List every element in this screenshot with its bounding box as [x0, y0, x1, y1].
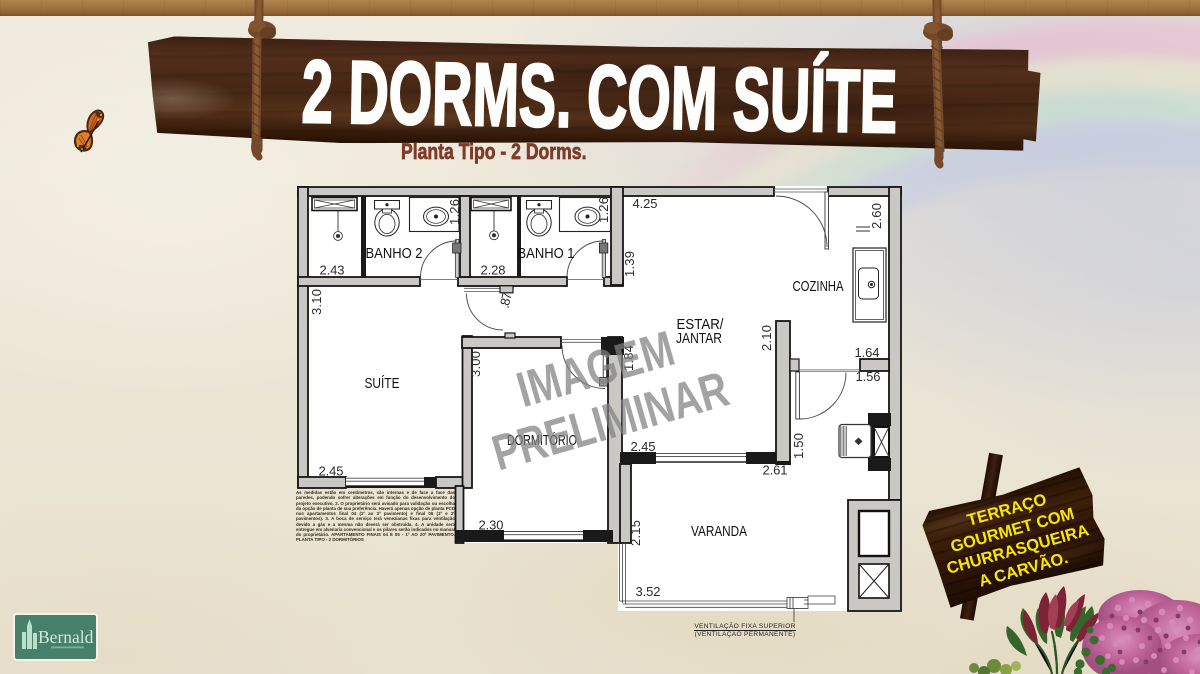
- svg-text:1.50: 1.50: [791, 433, 806, 459]
- svg-text:SUÍTE: SUÍTE: [365, 375, 400, 392]
- svg-text:1.56: 1.56: [856, 369, 881, 384]
- svg-text:2.60: 2.60: [869, 203, 884, 229]
- svg-text:2.45: 2.45: [319, 464, 344, 479]
- svg-text:1.39: 1.39: [622, 251, 637, 277]
- svg-text:VARANDA: VARANDA: [691, 523, 747, 540]
- svg-text:3.52: 3.52: [636, 584, 661, 599]
- svg-text:1.26: 1.26: [596, 197, 611, 223]
- svg-text:3.10: 3.10: [309, 289, 324, 315]
- svg-text:BANHO 2: BANHO 2: [366, 245, 423, 262]
- svg-text:2.43: 2.43: [320, 263, 345, 278]
- svg-text:4.25: 4.25: [633, 196, 658, 211]
- svg-text:2.15: 2.15: [628, 520, 643, 546]
- svg-text:2.30: 2.30: [479, 518, 504, 533]
- svg-text:Bernald: Bernald: [38, 627, 94, 647]
- svg-text:BANHO 1: BANHO 1: [518, 245, 575, 262]
- svg-text:2.61: 2.61: [763, 463, 788, 478]
- svg-text:1.26: 1.26: [447, 199, 462, 225]
- svg-text:2.28: 2.28: [481, 263, 506, 278]
- svg-text:1.64: 1.64: [855, 345, 880, 360]
- svg-text:COZINHA: COZINHA: [793, 278, 844, 295]
